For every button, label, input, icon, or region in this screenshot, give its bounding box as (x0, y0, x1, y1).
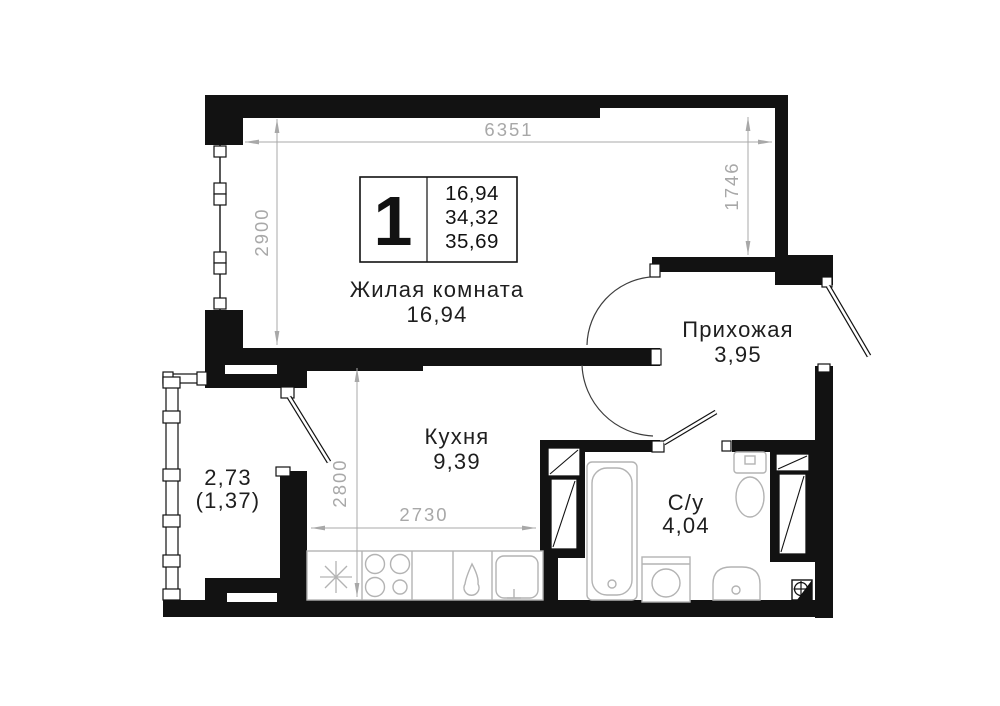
balcony-mullion (163, 515, 180, 527)
info-area-total: 35,69 (445, 230, 499, 253)
balcony-wall-window-slit-bottom (227, 593, 277, 602)
dim-arrow (275, 119, 280, 133)
living-room-window (214, 145, 226, 310)
info-area-mid: 34,32 (445, 206, 499, 229)
dim-arrow (746, 117, 751, 131)
info-area-living: 16,94 (445, 182, 499, 205)
dim-arrow (275, 331, 280, 345)
living-hallway-door-arc (587, 277, 650, 345)
dim-arrow (245, 140, 259, 145)
jamb-balcony-top (281, 387, 294, 398)
bathroom-sink (713, 567, 760, 600)
electrical-panel-icon (792, 580, 812, 600)
wall-bathroom-top-left (585, 440, 660, 452)
window-mullion (214, 263, 226, 274)
label-kitchen: Кухня (425, 424, 490, 449)
balcony-door-leaf (289, 397, 329, 462)
bathtub (587, 462, 637, 600)
jamb-balcony-bottom (276, 467, 290, 476)
balcony-glazing (163, 372, 207, 600)
washing-machine (642, 557, 690, 602)
balcony-mullion (197, 372, 207, 385)
window-mullion (214, 298, 226, 309)
label-hallway: Прихожая (682, 317, 794, 342)
balcony-mullion (163, 555, 180, 567)
jamb-bathroom-right (722, 441, 731, 451)
wall-bottom (163, 600, 833, 617)
bathroom-door-leaf-fill (664, 412, 716, 443)
dim-label-top-width: 6351 (484, 119, 533, 140)
balcony-mullion (163, 377, 180, 388)
label-living-room: Жилая комната (350, 277, 525, 302)
label-living-room-area: 16,94 (406, 302, 467, 327)
label-bathroom-area: 4,04 (662, 513, 710, 538)
balcony-mullion (163, 411, 180, 423)
toilet-bowl (736, 477, 764, 517)
dim-label-living-height: 2900 (251, 207, 272, 256)
floor-plan-drawing: 6351 2900 1746 2800 2730 1 16,94 34,32 3… (0, 0, 1000, 706)
dim-label-kitchen-width: 2730 (399, 504, 448, 525)
bathroom-door-leaf (664, 412, 716, 443)
bathtub-outer (587, 462, 637, 600)
balcony-mullion (163, 469, 180, 481)
balcony-mullion (163, 589, 180, 600)
jamb-living-door (651, 349, 661, 365)
sink-basin (713, 567, 760, 600)
balcony-wall-window-slit-top (225, 365, 277, 374)
dim-arrow (522, 526, 536, 531)
kitchen-hallway-door-arc (582, 365, 653, 436)
dim-label-right-height: 1746 (721, 161, 742, 210)
entry-door-leaf-fill (828, 286, 869, 356)
dim-label-kitchen-height: 2800 (329, 458, 350, 507)
label-kitchen-area: 9,39 (433, 449, 481, 474)
window-mullion (214, 252, 226, 263)
kitchen-sink (496, 556, 538, 598)
jamb-hallway-door (650, 264, 660, 277)
label-balcony-area-reduced: (1,37) (196, 488, 261, 513)
info-rooms-count: 1 (374, 182, 413, 260)
sink-bowl (496, 556, 538, 598)
label-bathroom: С/у (668, 490, 705, 515)
dim-arrow (311, 526, 325, 531)
balcony-door-leaf-fill (289, 397, 329, 462)
wall-top-right (600, 95, 788, 108)
jamb-bathroom-left (652, 441, 664, 452)
toilet (734, 452, 766, 517)
jamb-entry-bottom (818, 364, 830, 372)
window-mullion (214, 194, 226, 205)
floor-plan: 6351 2900 1746 2800 2730 1 16,94 34,32 3… (0, 0, 1000, 706)
label-hallway-area: 3,95 (714, 342, 762, 367)
wall-right-upper (775, 97, 788, 257)
dim-arrow (758, 140, 772, 145)
label-balcony-area: 2,73 (204, 465, 252, 490)
entry-door-leaf (828, 286, 869, 356)
wall-right-lower (815, 366, 833, 618)
wall-top-left (205, 95, 600, 118)
info-box: 1 16,94 34,32 35,69 (360, 177, 517, 262)
window-mullion (214, 183, 226, 194)
window-mullion (214, 146, 226, 157)
toilet-tank (734, 452, 766, 473)
wall-left-corner-block (205, 95, 243, 145)
dim-arrow (746, 241, 751, 255)
